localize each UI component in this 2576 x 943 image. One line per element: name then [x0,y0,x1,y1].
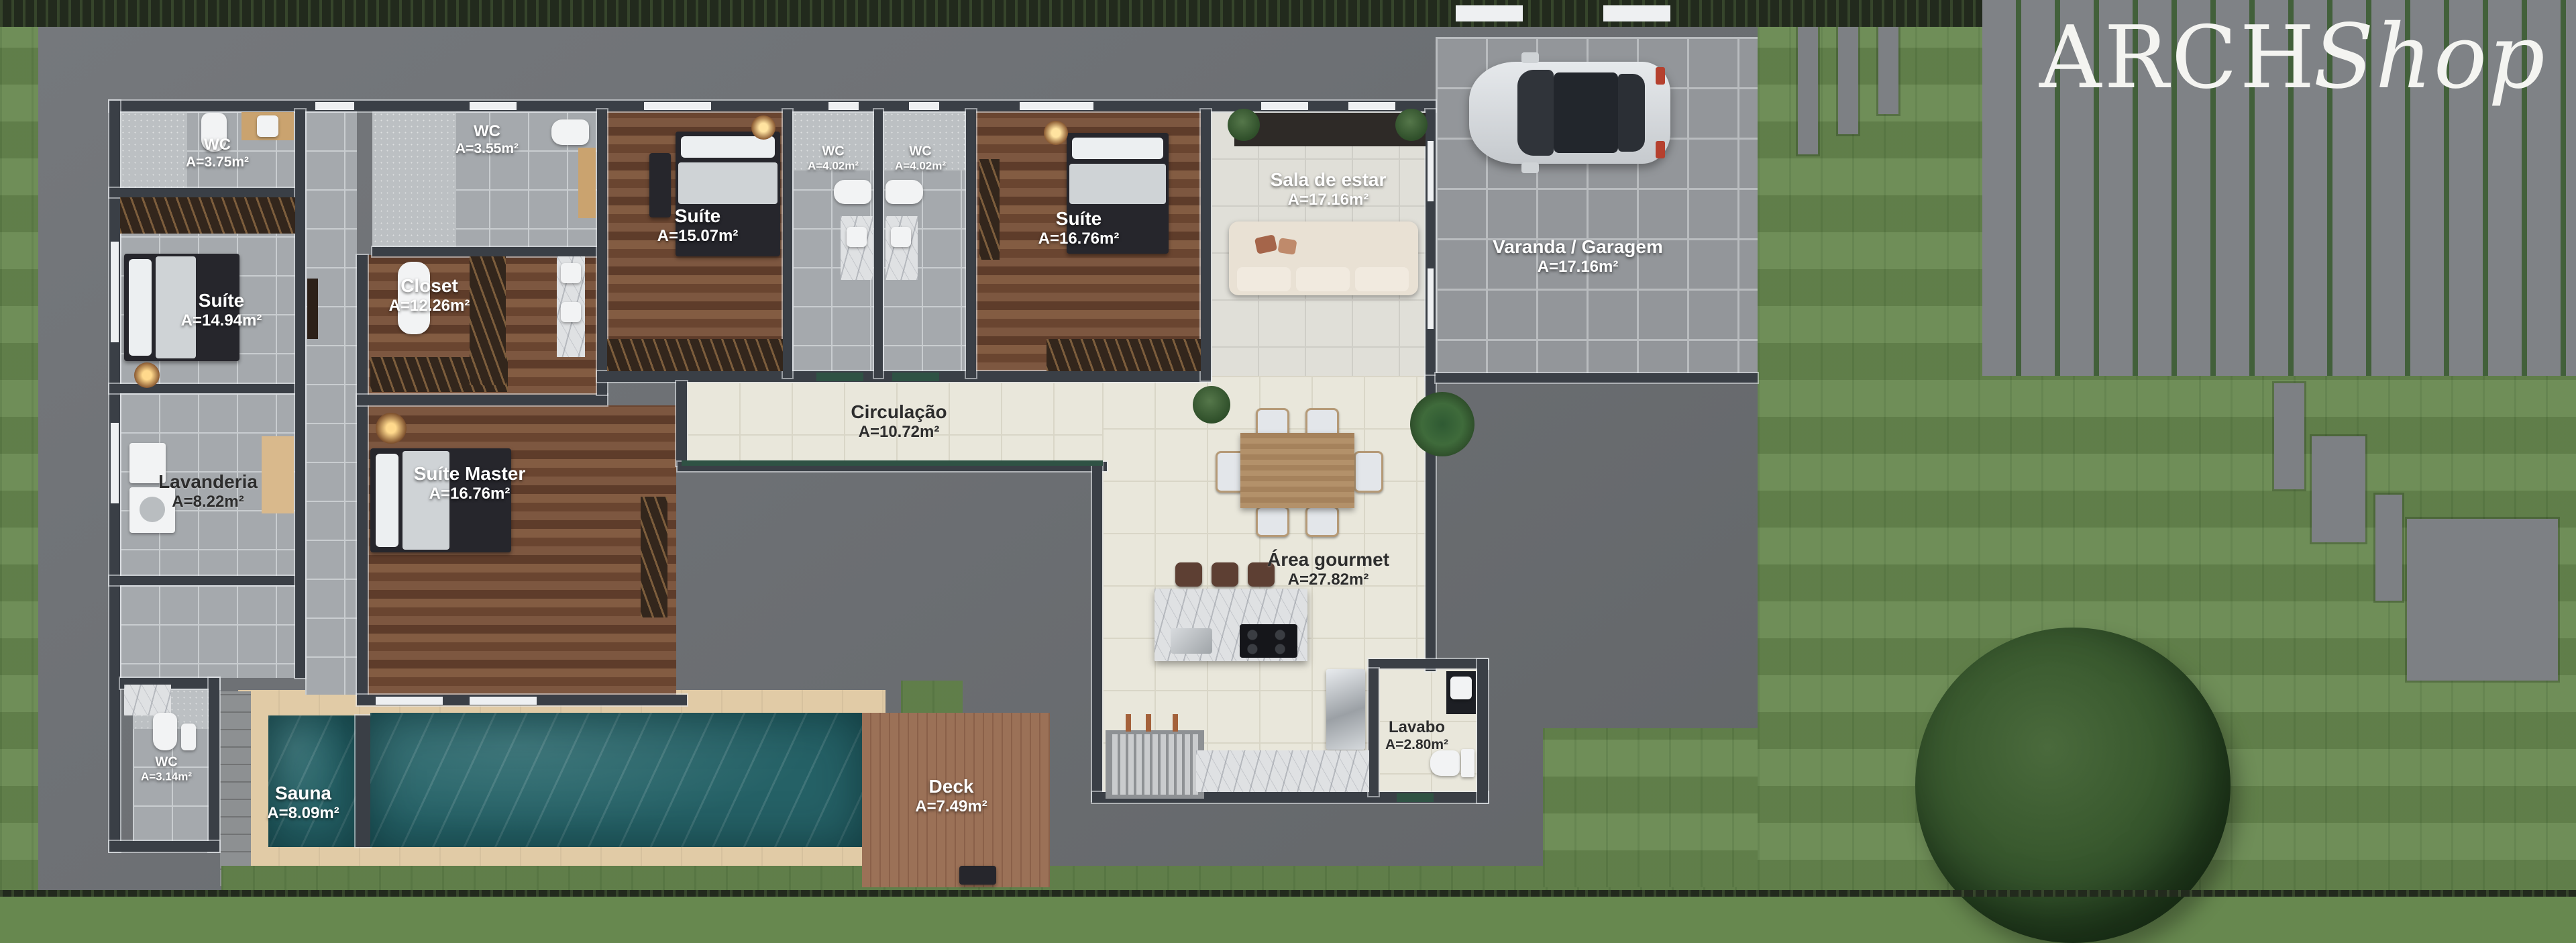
plant [1193,386,1230,424]
top-hedge [0,0,1982,27]
toilet [885,180,923,204]
bed-blanket [1069,164,1166,204]
room-label-lavabo: LavaboA=2.80m² [1385,718,1448,753]
sauna-pool-divider [356,715,370,847]
toilet [551,119,589,145]
sink [1450,677,1472,699]
window [828,102,859,110]
plant [1395,109,1428,141]
wall [209,678,219,852]
stone-path [220,691,251,887]
wall [357,255,368,695]
door-threshold [892,373,939,381]
archshop-logo: ARCHShop [2039,5,2546,109]
wall [109,841,219,852]
wall [676,381,687,466]
room-label-wc-suite1: WCA=3.75m² [186,136,249,170]
front-door [315,102,354,110]
window [1348,102,1395,110]
wall [966,109,976,378]
left-grass-strip [0,0,38,897]
wall [1368,668,1379,796]
car-taillight [1656,67,1665,85]
dining-table [1240,433,1354,508]
window [111,423,119,503]
car-windshield [1517,70,1554,156]
wall [1092,462,1102,801]
sink [891,227,911,247]
sofa-cushion [1237,267,1291,291]
wall [372,247,597,256]
bedside-lamp [751,115,775,140]
shower-wc-closet [372,111,456,247]
sink [561,302,581,322]
sink [561,263,581,283]
wall [1477,659,1488,803]
bed-pillows [1072,138,1163,159]
console-table [307,279,318,339]
grass-patch [1543,728,1758,887]
room-label-suite2: SuíteA=15.07m² [657,205,739,246]
window [470,697,537,705]
deck-step [959,866,996,885]
dining-chair [1256,506,1289,537]
wall [874,109,883,378]
tv-unit [979,159,1000,260]
door-threshold [816,373,863,381]
car-roof [1554,72,1618,153]
wardrobe [607,339,783,371]
toilet [1430,750,1460,776]
window [1020,102,1093,110]
room-label-area-gourmet: Área gourmetA=27.82m² [1267,549,1389,589]
gate [1456,5,1523,21]
paver-bar [1878,27,1898,114]
throw-pillow [1277,238,1297,255]
wall [597,109,607,395]
paver-patio [2407,519,2558,681]
wall [357,395,607,405]
toilet-cistern [1461,749,1474,777]
room-label-closet: ClosetA=12.26m² [389,275,470,315]
bbq-skewer [1126,714,1131,732]
logo-shop-text: Shop [2313,5,2546,109]
floor-hall-south [120,585,295,678]
window-sill-green [682,460,1103,466]
floor-hallway [305,111,357,695]
car-mirror [1521,162,1539,173]
bed-pillows [129,259,152,356]
wall [1201,109,1211,381]
fridge [1326,669,1365,750]
bedside-lamp [1044,121,1068,145]
bed-pillows [681,136,775,158]
window [470,102,517,110]
paver-bar [1798,27,1818,154]
paver-bar [1838,27,1858,134]
pool-water [370,713,862,847]
tv-unit [641,497,667,617]
sink [257,115,278,137]
hall-marble [124,685,171,715]
dining-chair [1354,451,1383,493]
window [644,102,711,110]
sauna-water [268,715,356,847]
bed-blanket [678,162,777,204]
sink [181,724,196,750]
gate [1603,5,1670,21]
bbq-skewer [1146,714,1151,732]
wall [109,188,295,197]
room-label-lavanderia: LavanderiaA=8.22m² [158,471,258,511]
logo-arch-text: ARCH [2039,8,2317,108]
wall [109,384,295,393]
room-label-sauna: SaunaA=8.09m² [267,783,339,823]
room-label-sala: Sala de estarA=17.16m² [1271,169,1387,209]
bottom-hedge [0,890,2576,897]
bathroom-counter [885,216,918,280]
cooktop [1240,624,1297,658]
bar-stool [1212,562,1238,587]
room-label-wc-closet: WCA=3.55m² [455,122,519,157]
room-label-circulacao: CirculaçãoA=10.72m² [851,401,947,442]
door-threshold [1397,793,1434,802]
window [376,697,443,705]
room-label-wc-suite3: WCA=4.02m² [895,144,946,173]
room-label-wc-sauna: WCA=3.14m² [141,755,192,784]
sink [847,227,867,247]
paver-step [2312,436,2365,542]
toilet [834,180,871,204]
bedside-lamp [376,413,407,444]
room-label-varanda: Varanda / GaragemA=17.16m² [1493,236,1663,277]
window [111,242,119,342]
wardrobe [1046,339,1201,371]
wall [109,576,295,585]
sofa-cushion [1296,267,1350,291]
wall [1436,373,1758,383]
room-label-suite3: SuíteA=16.76m² [1038,208,1120,248]
palm-plant [1410,392,1474,456]
wardrobe [120,197,295,234]
wall [1368,659,1488,668]
sala-opening [1428,141,1434,201]
bbq-skewer [1173,714,1178,732]
plant [1228,109,1260,141]
bathroom-counter [841,216,873,280]
bbq-grill [1106,730,1204,799]
car-taillight [1656,141,1665,158]
grass-patch [901,681,963,714]
room-label-wc-suite2: WCA=4.02m² [808,144,859,173]
dining-chair [1305,506,1339,537]
window [909,102,939,110]
car-rear-window [1618,74,1645,152]
wardrobe [470,256,506,385]
room-label-suite1: SuíteA=14.94m² [181,290,262,330]
laundry-counter [262,436,294,513]
room-label-suite-master: Suíte MasterA=16.76m² [414,463,526,503]
sala-opening [1428,268,1434,329]
bedside-lamp [134,362,160,388]
wall [295,109,305,678]
paver-step [2274,383,2304,489]
floor-plan: WCA=3.75m² SuíteA=14.94m² WCA=3.55m² Clo… [0,0,2576,897]
bar-stool [1175,562,1202,587]
wall [783,109,792,378]
bed-pillows [376,454,398,547]
paver-step [2375,495,2402,601]
window [1261,102,1308,110]
room-label-deck: DeckA=7.49m² [915,776,987,816]
kitchen-counter [1196,750,1369,792]
bathroom-counter [578,148,596,218]
island-sink [1171,628,1212,654]
shower-wc-suite1 [120,111,187,188]
toilet [153,713,177,750]
car-mirror [1521,52,1539,63]
sofa-cushion [1355,267,1409,291]
